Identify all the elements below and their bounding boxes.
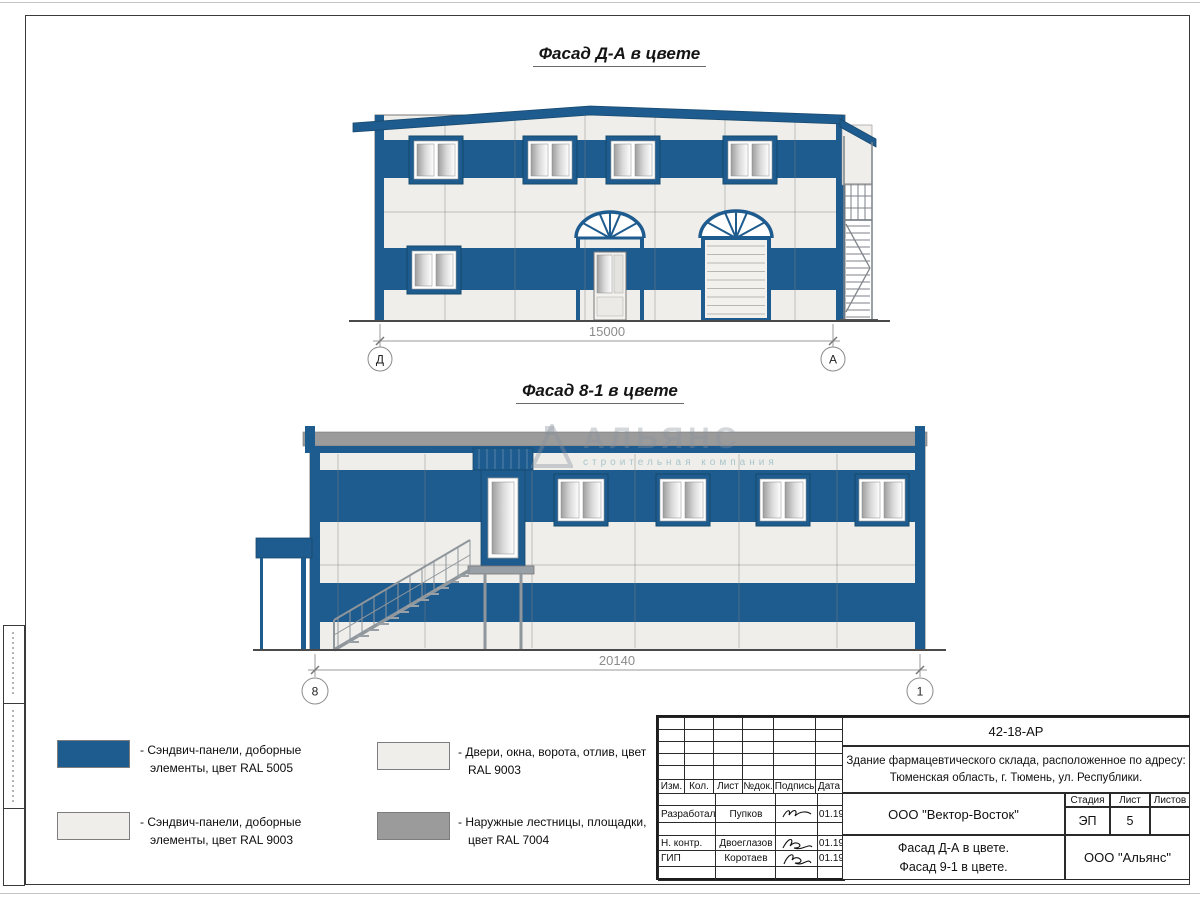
window (554, 474, 608, 526)
axis-marker-left: Д (368, 347, 392, 371)
axis-marker-right: А (821, 347, 845, 371)
signature-icon (780, 807, 814, 821)
role-label: Н. контр. (659, 836, 716, 851)
date-cell: 01.19 (818, 851, 845, 867)
stair-door (473, 448, 533, 566)
signature-cell (776, 836, 818, 851)
project-description-line1: Здание фармацевтического склада, располо… (846, 753, 1185, 769)
window (606, 136, 660, 184)
project-description: Здание фармацевтического склада, располо… (842, 746, 1190, 793)
facade-81-title: Фасад 8-1 в цвете (250, 381, 950, 404)
legend-label: - Сэндвич-панели, доборные элементы, цве… (140, 813, 342, 849)
sheet-value: 5 (1110, 807, 1150, 835)
window (656, 474, 710, 526)
frame-attachment-box (3, 625, 25, 704)
date-cell: 01.19 (818, 806, 845, 823)
person-name: Пупков (716, 806, 776, 823)
col-header: Дата (816, 780, 843, 794)
facade-81-drawing: 20140 8 1 (248, 418, 953, 718)
canopy (256, 538, 312, 650)
svg-text:1: 1 (917, 685, 924, 699)
contractor-company: ООО "Альянс" (1065, 835, 1190, 880)
drawing-sheet: Фасад Д-А в цвете (0, 0, 1200, 900)
dimension-value: 15000 (589, 324, 625, 339)
col-header: №док. (743, 780, 774, 794)
paper-edge-bottom (0, 893, 1200, 894)
signature-icon (780, 836, 814, 850)
sheets-label: Листов (1150, 793, 1190, 807)
window (409, 136, 463, 184)
signature-icon (780, 851, 814, 866)
window (723, 136, 777, 184)
svg-text:Д: Д (376, 353, 384, 367)
color-swatch (57, 740, 130, 768)
vertical-label-placeholder (12, 632, 14, 697)
sheets-value (1150, 807, 1190, 835)
designer-company: ООО "Вектор-Восток" (842, 793, 1065, 835)
col-header: Изм. (659, 780, 685, 794)
signature-cell (776, 806, 818, 823)
facade-da-title: Фасад Д-А в цвете (337, 44, 902, 67)
window-lower (407, 246, 461, 294)
sheet-subject-line1: Фасад Д-А в цвете. (898, 839, 1009, 857)
blue-stripe (320, 470, 915, 522)
sheet-subject: Фасад Д-А в цвете. Фасад 9-1 в цвете. (842, 835, 1065, 880)
legend-label: - Наружные лестницы, площадки, цвет RAL … (458, 813, 660, 849)
color-swatch (377, 812, 450, 840)
frame-attachment-box (3, 703, 25, 809)
roof (303, 426, 927, 453)
legend-label: - Сэндвич-панели, доборные элементы, цве… (140, 741, 342, 777)
building-wall (310, 438, 925, 650)
frame-attachment-box (3, 808, 25, 886)
revision-table: Изм. Кол. Лист №док. Подпись Дата (658, 717, 843, 794)
sheet-label: Лист (1110, 793, 1150, 807)
stage-label: Стадия (1065, 793, 1110, 807)
date-cell: 01.19 (818, 836, 845, 851)
legend-label: - Двери, окна, ворота, отлив, цвет RAL 9… (458, 743, 660, 779)
color-swatch (377, 742, 450, 770)
paper-edge-top (0, 2, 1200, 3)
project-description-line2: Тюменская область, г. Тюмень, ул. Респуб… (890, 770, 1143, 786)
color-swatch (57, 812, 130, 840)
svg-text:8: 8 (312, 685, 319, 699)
role-label: Разработал (659, 806, 716, 823)
axis-marker-right: 1 (907, 678, 933, 704)
window (523, 136, 577, 184)
facade-da-drawing: 15000 Д А (337, 92, 902, 387)
gate (700, 211, 772, 320)
col-header: Подпись (774, 780, 816, 794)
role-label: ГИП (659, 851, 716, 867)
vertical-label-placeholder (12, 710, 14, 802)
blue-stripe (320, 583, 915, 622)
svg-text:А: А (829, 353, 837, 367)
doc-number: 42-18-АР (842, 717, 1190, 746)
window (756, 474, 810, 526)
window (855, 474, 909, 526)
person-name: Двоеглазов (716, 836, 776, 851)
person-name: Коротаев (716, 851, 776, 867)
col-header: Лист (714, 780, 743, 794)
signature-table: Разработал Пупков 01.19 Н. контр. Двоегл… (658, 793, 845, 881)
col-header: Кол. (685, 780, 714, 794)
stage-value: ЭП (1065, 807, 1110, 835)
sheet-subject-line2: Фасад 9-1 в цвете. (899, 858, 1007, 876)
signature-cell (776, 851, 818, 867)
dimension-value: 20140 (599, 653, 635, 668)
axis-marker-left: 8 (302, 678, 328, 704)
